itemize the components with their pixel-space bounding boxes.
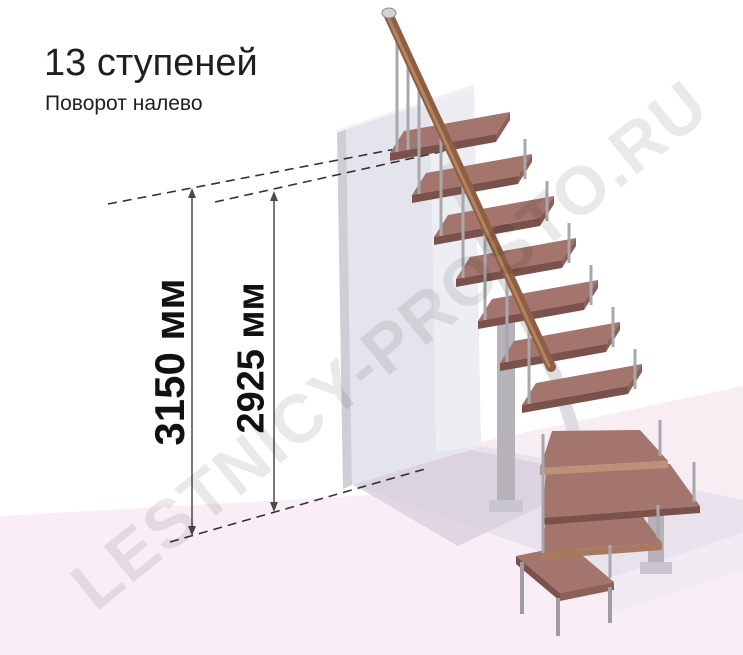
step-leg <box>608 587 612 623</box>
step-leg <box>520 562 524 614</box>
dimension-label-upper-height: 2925 мм <box>231 282 274 433</box>
page-subtitle: Поворот налево <box>45 92 203 116</box>
winder-column-base <box>640 562 672 574</box>
handrail-top-cap <box>382 8 396 18</box>
page-title: 13 ступеней <box>44 42 258 85</box>
arrow-up-icon <box>188 188 196 198</box>
dimension-label-total-height: 3150 мм <box>146 278 194 445</box>
step-leg <box>556 598 560 636</box>
arrow-up-icon <box>270 191 278 201</box>
stair-diagram: LESTNICY-PROSTO.RU 13 ступеней Поворот н… <box>0 0 743 655</box>
main-column-base <box>489 500 523 512</box>
